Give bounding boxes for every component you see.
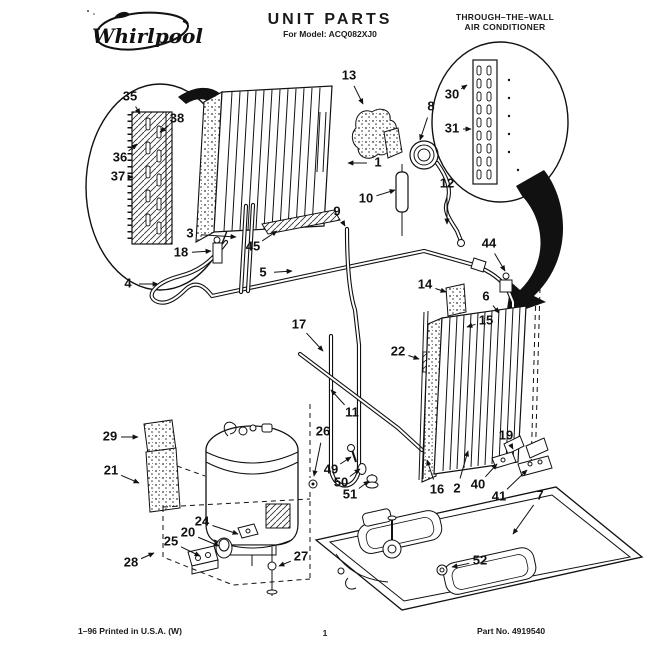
part-number-17: 17	[292, 316, 306, 331]
callout-leader	[192, 251, 211, 252]
footer-part-number: Part No. 4919540	[477, 626, 587, 636]
bolt-part-27	[268, 562, 276, 570]
capillary-coil	[410, 141, 438, 169]
callout-leader	[420, 117, 428, 140]
part-number-36: 36	[113, 149, 127, 164]
part-number-22: 22	[391, 343, 405, 358]
callout-leader	[342, 222, 345, 226]
part-number-20: 20	[181, 524, 195, 539]
callout-leader	[461, 85, 467, 89]
callout-leader	[279, 561, 291, 566]
part-number-31: 31	[445, 120, 459, 135]
part-number-14: 14	[418, 276, 433, 291]
terminal-cover	[266, 504, 290, 528]
part-number-40: 40	[471, 476, 485, 491]
arrow-to-evaporator	[506, 170, 563, 316]
part-number-18: 18	[174, 244, 188, 259]
part-number-41: 41	[492, 488, 506, 503]
callout-leader	[495, 253, 505, 271]
manual-page: { "header": { "brand": "Whirlpool", "tit…	[0, 0, 650, 650]
condenser-coil	[196, 86, 340, 242]
part-number-27: 27	[294, 548, 308, 563]
callout-leader	[435, 288, 446, 292]
part-number-10: 10	[359, 190, 373, 205]
callout-leader	[314, 443, 321, 476]
grille-dots	[508, 79, 519, 171]
filter-pads	[144, 420, 205, 512]
drier-cylinder	[396, 164, 408, 236]
part-number-21: 21	[104, 462, 118, 477]
plate-part-41	[518, 456, 552, 476]
part-number-8: 8	[427, 98, 434, 113]
union-fitting	[471, 258, 486, 272]
part-number-26: 26	[316, 423, 330, 438]
callout-leader	[354, 86, 363, 104]
part-number-19: 19	[499, 427, 513, 442]
part-number-16: 16	[430, 481, 444, 496]
footer-page-number: 1	[300, 628, 350, 638]
callout-leader	[306, 333, 323, 351]
callout-leader	[507, 470, 527, 489]
part-number-51: 51	[343, 486, 357, 501]
part-number-9: 9	[333, 203, 340, 218]
callout-leader	[408, 355, 419, 359]
foam-seal	[352, 109, 402, 158]
part-number-2: 2	[453, 480, 460, 495]
part-number-5: 5	[259, 264, 266, 279]
part-number-28: 28	[124, 554, 138, 569]
part-number-25: 25	[164, 533, 178, 548]
part-number-24: 24	[195, 513, 210, 528]
callout-leader	[274, 271, 292, 272]
part-number-30: 30	[445, 86, 459, 101]
clamp-part-18	[213, 243, 222, 263]
part-number-37: 37	[111, 168, 125, 183]
base-pan	[316, 487, 642, 610]
callout-leader	[340, 457, 351, 464]
part-number-7: 7	[536, 487, 543, 502]
part-number-52: 52	[473, 552, 487, 567]
part-number-15: 15	[479, 312, 493, 327]
part-number-3: 3	[186, 225, 193, 240]
part-number-12: 12	[440, 175, 454, 190]
part-number-29: 29	[103, 428, 117, 443]
callout-leader	[377, 190, 395, 196]
parts-diagram-canvas: 3538363713830311101293184554174414615221…	[0, 0, 650, 650]
part-number-11: 11	[345, 404, 359, 419]
part-number-44: 44	[482, 235, 497, 250]
part-number-4: 4	[124, 275, 132, 290]
part-number-13: 13	[342, 67, 356, 82]
callout-leader	[141, 553, 154, 559]
footer-print-info: 1–96 Printed in U.S.A. (W)	[78, 626, 182, 636]
part-number-1: 1	[374, 154, 381, 169]
part-number-45: 45	[246, 238, 260, 253]
part-number-35: 35	[123, 88, 137, 103]
callout-leader	[121, 475, 139, 483]
valve-body-part-44	[500, 280, 512, 292]
part-number-6: 6	[482, 288, 489, 303]
part-number-38: 38	[170, 110, 184, 125]
